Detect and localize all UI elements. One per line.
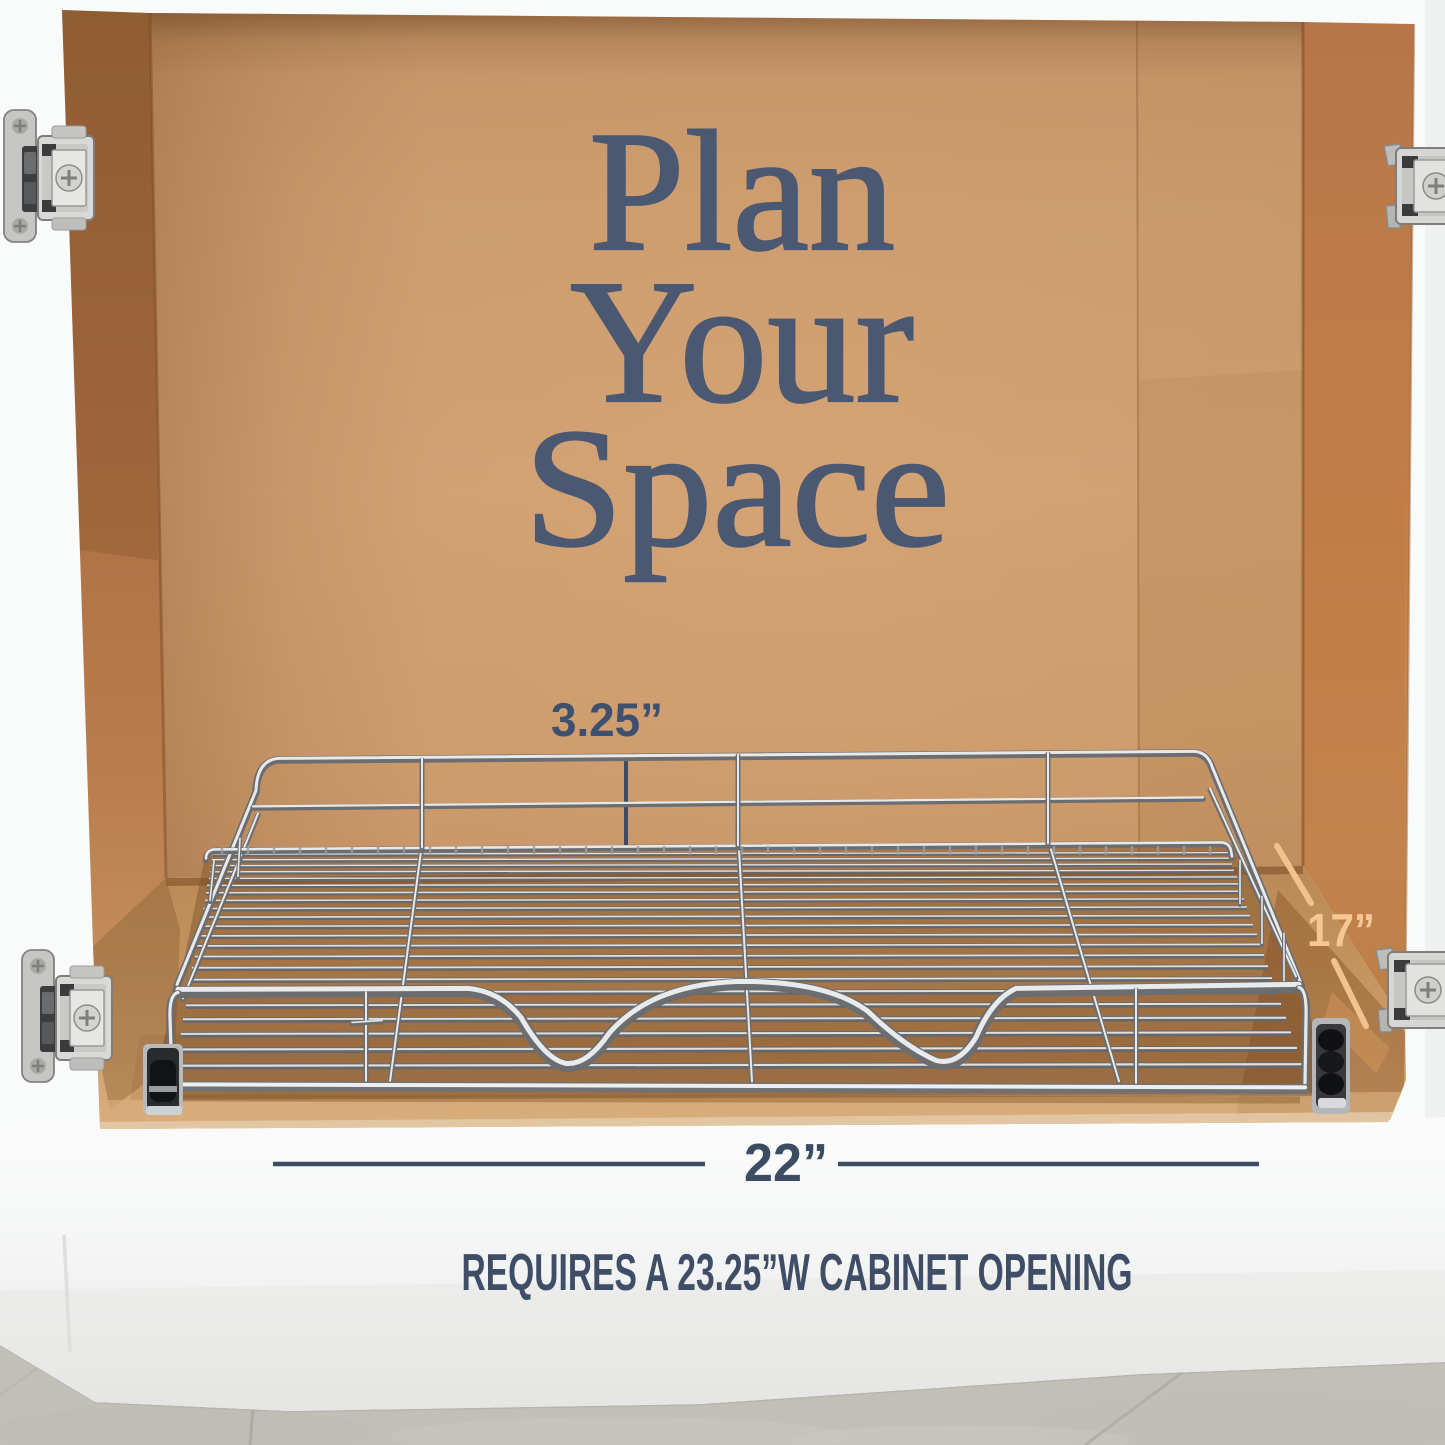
svg-text:3.25”: 3.25” — [551, 693, 663, 746]
svg-text:Space: Space — [524, 394, 950, 582]
svg-text:22”: 22” — [744, 1133, 828, 1193]
svg-text:REQUIRES A 23.25”W CABINET OPE: REQUIRES A 23.25”W CABINET OPENING — [462, 1244, 1133, 1302]
svg-text:17”: 17” — [1307, 904, 1375, 956]
